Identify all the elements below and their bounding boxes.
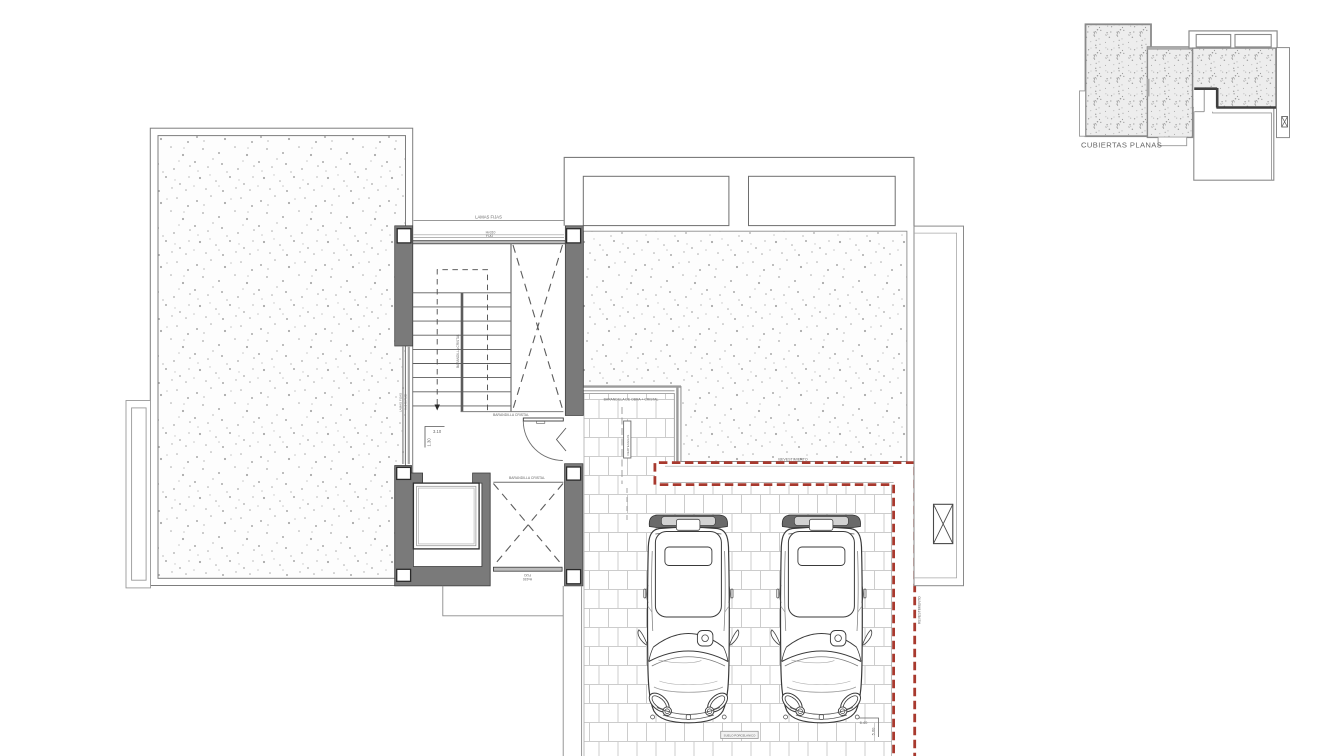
svg-text:REVESTIMIENTO: REVESTIMIENTO [778,458,807,462]
svg-text:BARANDILLA DE OBRA + CRISTAL: BARANDILLA DE OBRA + CRISTAL [604,397,659,401]
svg-text:LAMAS FIJAS: LAMAS FIJAS [398,393,402,412]
svg-text:5.60: 5.60 [871,727,876,736]
svg-text:FIJO: FIJO [486,234,494,238]
svg-text:BARANDILLA CRISTAL: BARANDILLA CRISTAL [493,413,529,417]
svg-text:VIERTEAGUAS: VIERTEAGUAS [626,435,630,456]
svg-text:3.10: 3.10 [433,429,442,434]
svg-text:LAMAS FIJAS: LAMAS FIJAS [475,215,502,220]
svg-text:1.30: 1.30 [427,438,432,447]
svg-text:6.40: 6.40 [860,720,869,725]
svg-text:SUELO PORCELANICO: SUELO PORCELANICO [724,733,756,737]
svg-text:BARANDILLA CRISTAL: BARANDILLA CRISTAL [456,334,460,368]
svg-text:FIJO: FIJO [524,573,531,577]
svg-text:Hv240 FIJO: Hv240 FIJO [403,393,407,410]
svg-text:REVESTIMIENTO: REVESTIMIENTO [917,596,921,624]
svg-text:BARANDILLA CRISTAL: BARANDILLA CRISTAL [509,476,545,480]
svg-text:CUBIERTAS PLANAS: CUBIERTAS PLANAS [1081,141,1162,150]
